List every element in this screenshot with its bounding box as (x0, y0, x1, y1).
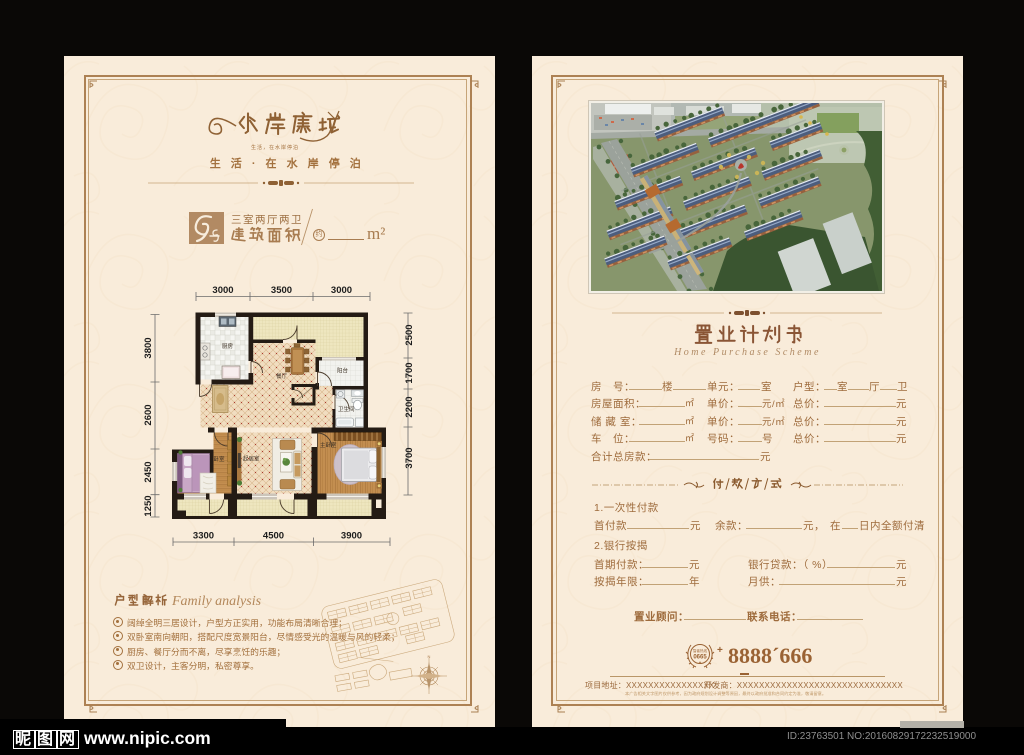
svg-text:卧室: 卧室 (214, 455, 226, 463)
svg-text:1250: 1250 (143, 495, 154, 516)
svg-text:阳台: 阳台 (337, 367, 349, 375)
svg-text:主卧室: 主卧室 (320, 441, 337, 449)
svg-text:3000: 3000 (212, 285, 233, 296)
svg-text:2450: 2450 (143, 461, 154, 482)
svg-text:2200: 2200 (404, 396, 415, 417)
svg-text:2500: 2500 (404, 324, 415, 345)
svg-text:2600: 2600 (143, 404, 154, 425)
svg-text:智者热线: 智者热线 (693, 648, 707, 653)
svg-text:3300: 3300 (193, 531, 214, 542)
svg-text:起居室: 起居室 (243, 455, 260, 463)
svg-text:3700: 3700 (404, 447, 415, 468)
svg-text:3900: 3900 (341, 531, 362, 542)
svg-text:卫生间: 卫生间 (338, 405, 355, 413)
svg-text:餐厅: 餐厅 (276, 372, 288, 380)
svg-text:3500: 3500 (271, 285, 292, 296)
svg-text:N: N (428, 654, 431, 659)
svg-text:3000: 3000 (331, 285, 352, 296)
svg-text:4500: 4500 (263, 531, 284, 542)
svg-text:3800: 3800 (143, 337, 154, 358)
svg-text:1700: 1700 (404, 362, 415, 383)
svg-text:厨房: 厨房 (222, 342, 234, 350)
